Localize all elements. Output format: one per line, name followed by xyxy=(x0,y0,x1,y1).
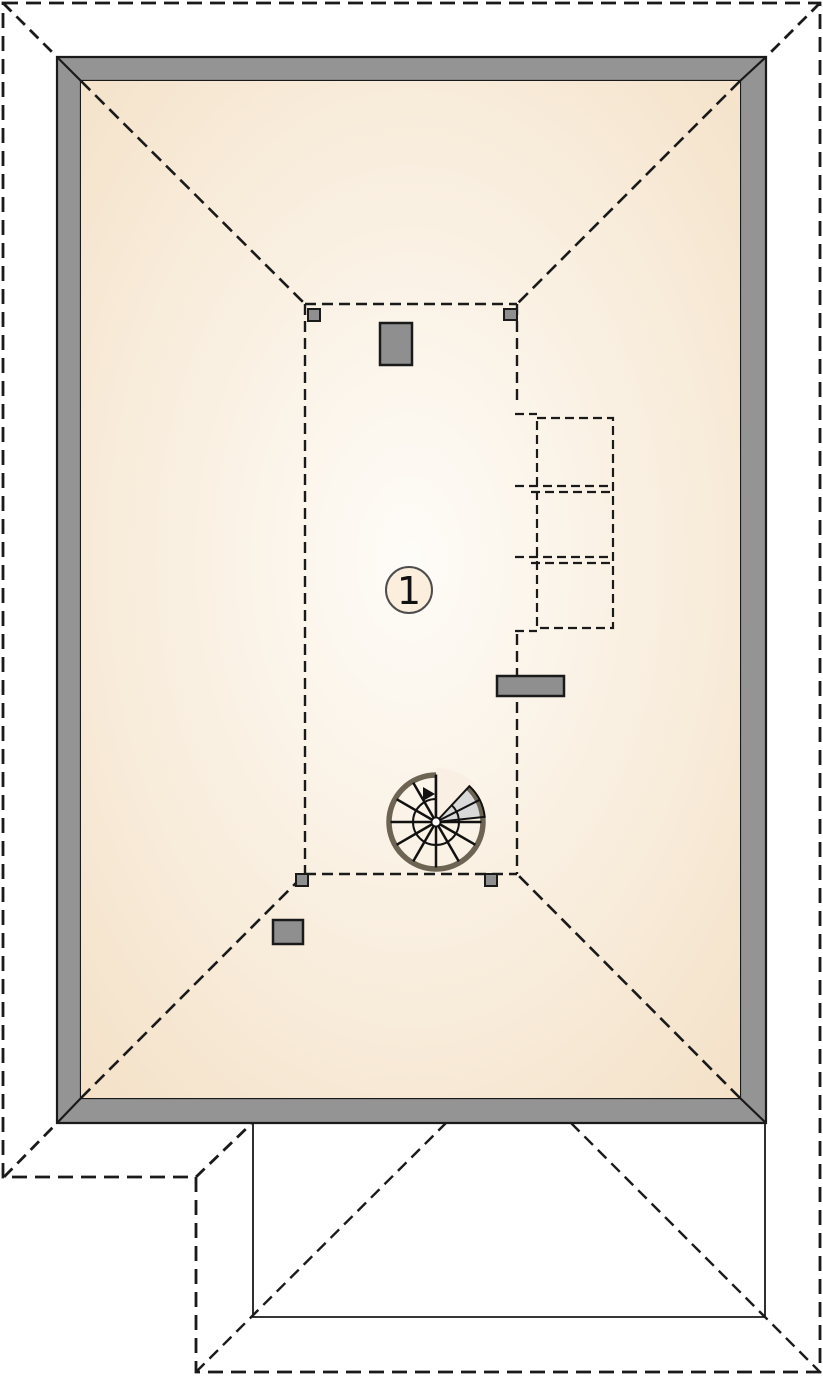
chimney-top xyxy=(380,323,412,365)
attic-floor-plan: 1 xyxy=(0,0,823,1376)
garage-hip-right xyxy=(571,1123,820,1372)
room-number-badge: 1 xyxy=(386,567,432,613)
eave-corner-tick-top-right xyxy=(766,3,820,57)
post-marker-bottom-right xyxy=(485,874,497,886)
post-marker-top-left xyxy=(308,309,320,321)
vent-bar-right xyxy=(497,676,564,696)
garage-hip-left xyxy=(196,1123,446,1372)
post-marker-top-right xyxy=(504,309,517,320)
chimney-bottom-left xyxy=(273,920,303,944)
stair-center-pole xyxy=(432,818,441,827)
garage-roof-solid-edge xyxy=(253,1123,765,1317)
post-marker-bottom-left xyxy=(296,874,308,886)
floor-plan-drawing: 1 xyxy=(0,0,823,1376)
eave-corner-tick-garage-left xyxy=(196,1124,251,1177)
eave-corner-tick-bottom-left xyxy=(4,1123,57,1177)
eave-corner-tick-top-left xyxy=(3,3,57,57)
room-number-label: 1 xyxy=(397,569,421,613)
garage-roof-outline xyxy=(196,1123,820,1372)
